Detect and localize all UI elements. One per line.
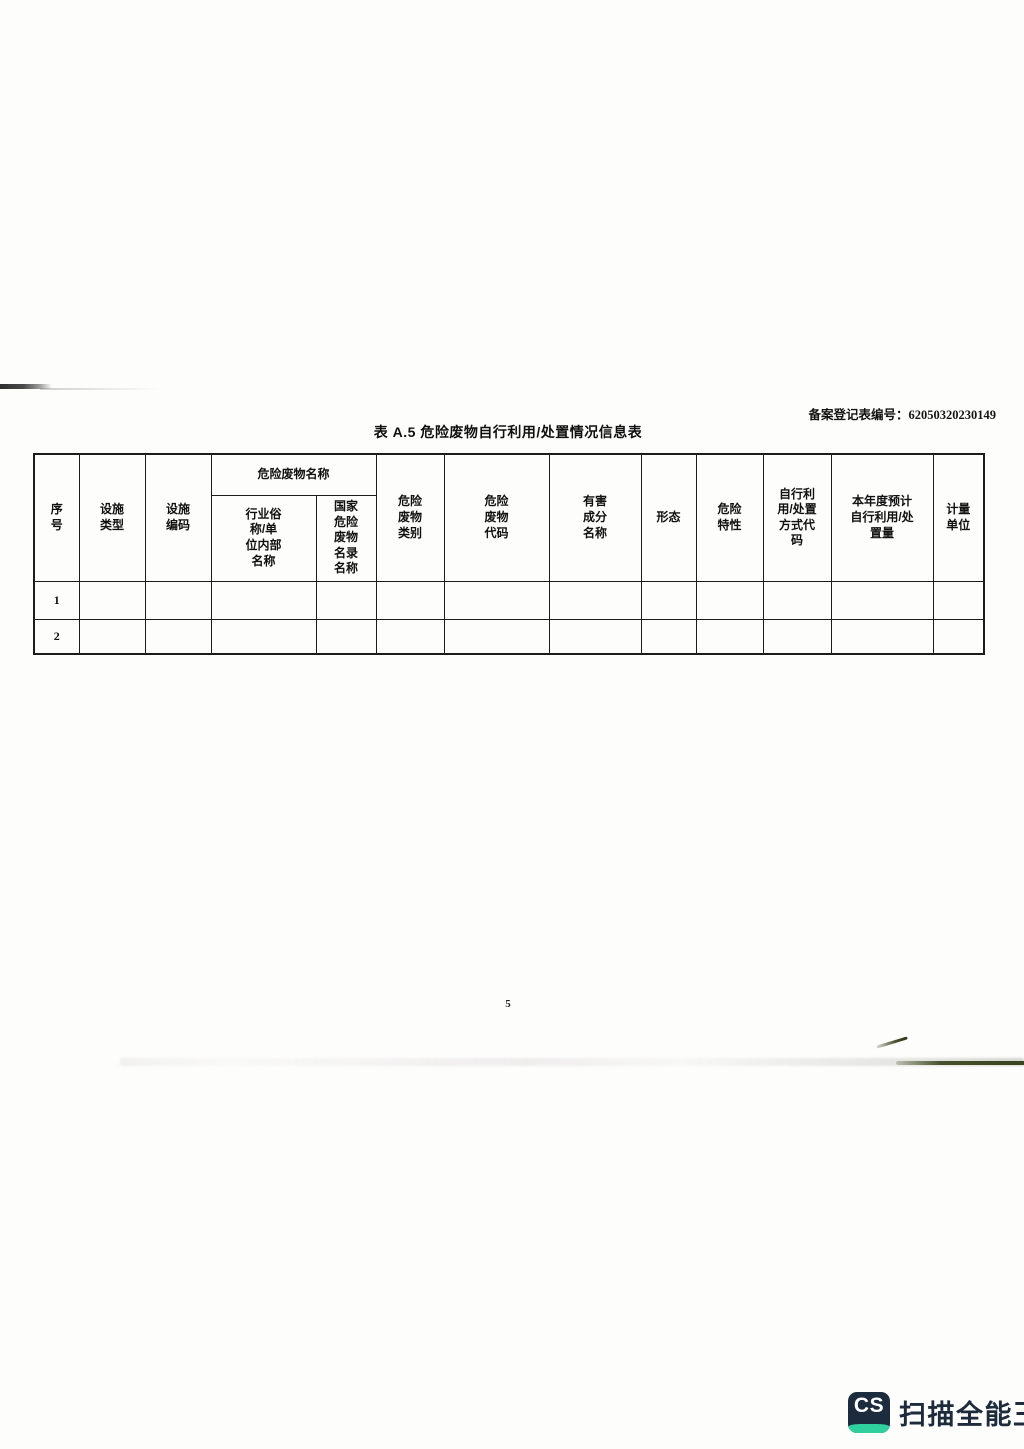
col-header-harmful-component: 有害 成分 名称 (549, 454, 641, 581)
page-number: 5 (33, 998, 983, 1010)
empty-cell (444, 581, 549, 619)
scan-artifact-page-edge-line (896, 1061, 1024, 1065)
empty-cell (696, 581, 763, 619)
record-number: 备案登记表编号：62050320230149 (808, 404, 996, 423)
empty-cell (79, 581, 145, 619)
hazardous-waste-self-use-table: 序 号 设施 类型 设施 编码 危险废物名称 危险 废物 类别 危险 废物 代码… (33, 453, 985, 655)
scan-artifact-page-edge-shadow (120, 1058, 1024, 1066)
empty-cell (933, 581, 984, 619)
empty-cell (316, 619, 376, 654)
col-header-unit: 计量 单位 (933, 454, 984, 581)
table-row: 2 (34, 619, 984, 654)
col-header-hazard-property: 危险 特性 (696, 454, 763, 581)
record-number-value: 62050320230149 (909, 408, 997, 422)
empty-cell (79, 619, 145, 654)
col-header-annual-amount: 本年度预计 自行利用/处 置量 (831, 454, 933, 581)
empty-cell (831, 619, 933, 654)
empty-cell (763, 581, 831, 619)
empty-cell (376, 619, 444, 654)
empty-cell (444, 619, 549, 654)
col-header-waste-category: 危险 废物 类别 (376, 454, 444, 581)
record-number-label: 备案登记表编号： (808, 408, 908, 422)
empty-cell (641, 581, 696, 619)
empty-cell (696, 619, 763, 654)
scan-artifact-pen-mark (876, 1036, 907, 1048)
table-row: 1 (34, 581, 984, 619)
empty-cell (549, 619, 641, 654)
row-number: 2 (34, 619, 79, 654)
empty-cell (376, 581, 444, 619)
empty-cell (211, 619, 316, 654)
empty-cell (549, 581, 641, 619)
col-header-form: 形态 (641, 454, 696, 581)
empty-cell (831, 581, 933, 619)
empty-cell (145, 619, 211, 654)
empty-cell (145, 581, 211, 619)
camscanner-watermark: CS 扫描全能王 (848, 1392, 1024, 1433)
camscanner-icon: CS (848, 1392, 890, 1433)
camscanner-icon-letters: CS (848, 1394, 890, 1418)
scan-artifact-top-left-faint (40, 388, 160, 390)
col-header-index: 序 号 (34, 454, 79, 581)
col-header-national-name: 国家 危险 废物 名录 名称 (316, 495, 376, 581)
col-header-facility-type: 设施 类型 (79, 454, 145, 581)
empty-cell (933, 619, 984, 654)
col-header-method-code: 自行利 用/处置 方式代 码 (763, 454, 831, 581)
empty-cell (763, 619, 831, 654)
col-header-waste-code: 危险 废物 代码 (444, 454, 549, 581)
scan-artifact-top-left-streak (0, 384, 52, 389)
camscanner-app-name: 扫描全能王 (899, 1393, 1024, 1432)
row-number: 1 (34, 581, 79, 619)
camscanner-icon-swoosh (848, 1424, 890, 1433)
col-group-header-waste-name: 危险废物名称 (211, 454, 376, 495)
empty-cell (641, 619, 696, 654)
empty-cell (316, 581, 376, 619)
col-header-facility-code: 设施 编码 (145, 454, 211, 581)
empty-cell (211, 581, 316, 619)
col-header-industry-name: 行业俗 称/单 位内部 名称 (211, 495, 316, 581)
page-title: 表 A.5 危险废物自行利用/处置情况信息表 (33, 422, 983, 442)
